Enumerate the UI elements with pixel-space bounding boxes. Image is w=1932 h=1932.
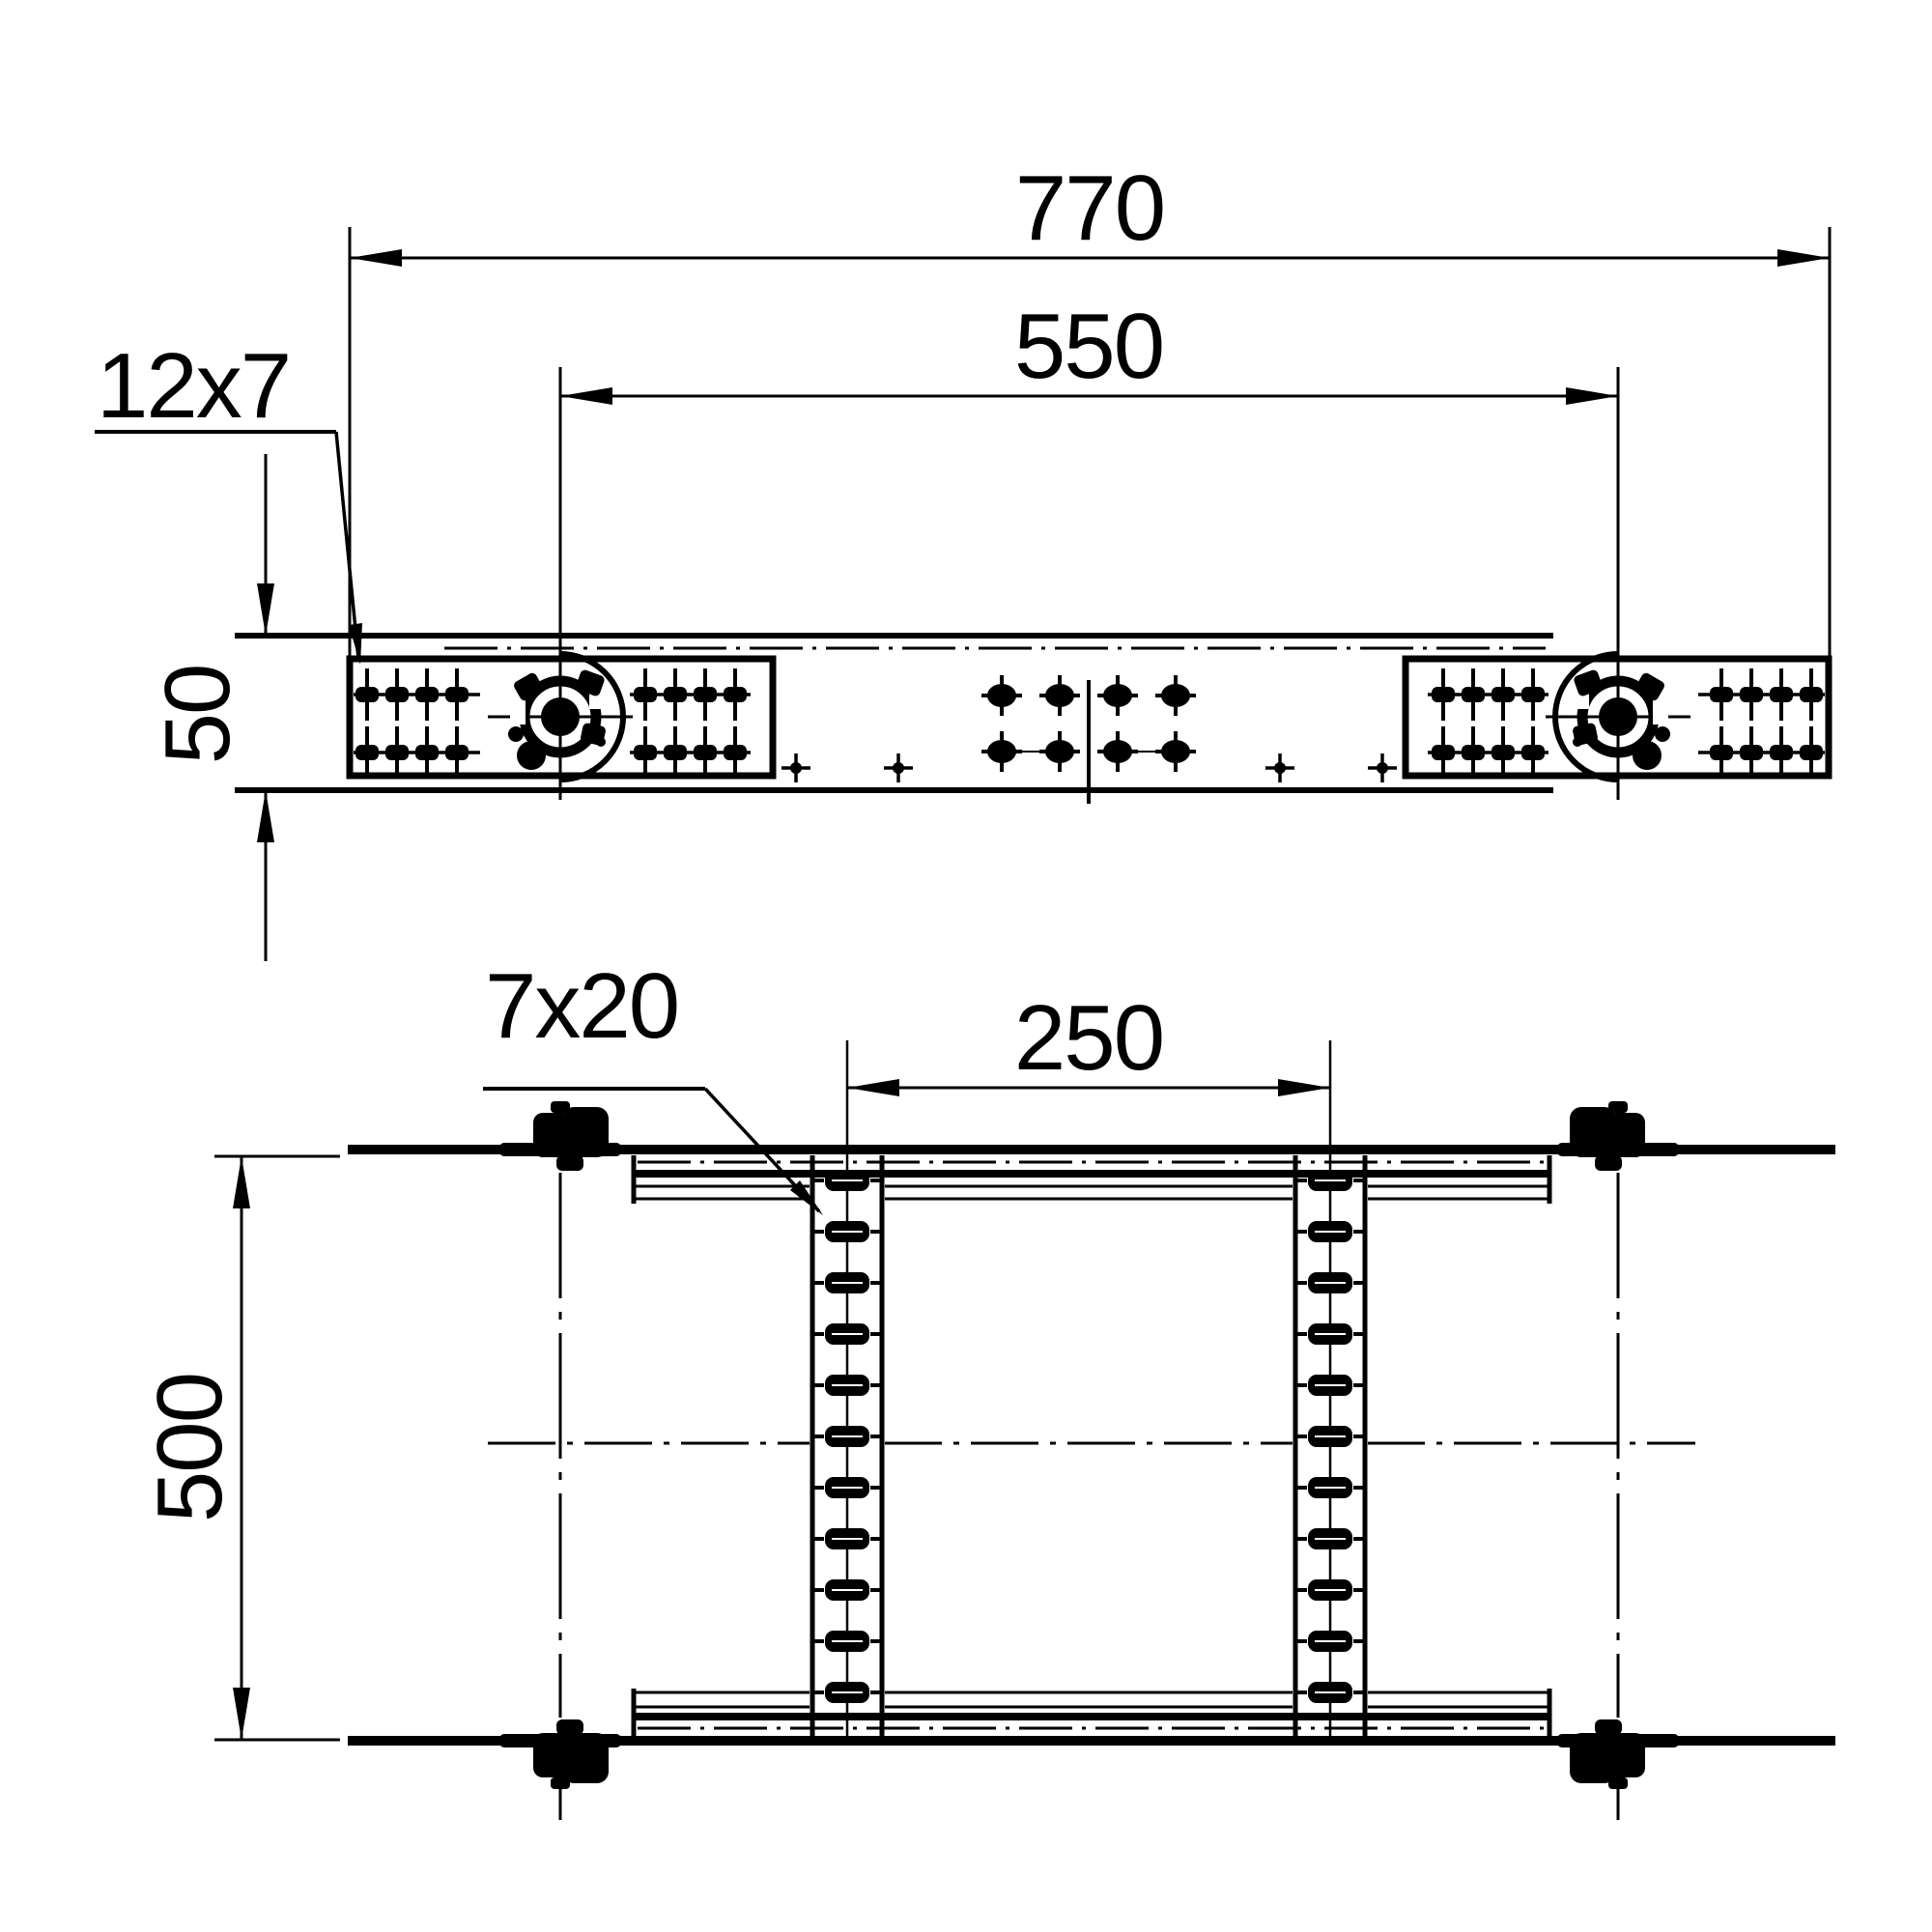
dim-770-label: 770 — [1015, 156, 1164, 260]
arrow-left-icon — [847, 1079, 899, 1096]
arrow-down-icon — [233, 1688, 250, 1740]
arrow-left-icon — [350, 249, 402, 267]
dim-50-label: 50 — [146, 666, 249, 765]
dim-500: 500 — [138, 1156, 340, 1740]
dim-770: 770 — [350, 156, 1830, 657]
connector-rail-thick-lines — [633, 1162, 1550, 1728]
dim-250-label: 250 — [1014, 986, 1163, 1090]
slot-size-top-label: 12x7 — [97, 334, 290, 438]
arrow-right-icon — [1777, 249, 1830, 267]
dim-250: 250 — [847, 986, 1330, 1096]
arrow-right-icon — [1566, 387, 1618, 405]
slot-size-front-label: 7x20 — [485, 954, 678, 1058]
arrow-left-icon — [560, 387, 612, 405]
arrow-up-icon — [233, 1156, 250, 1208]
connector-rail-thin-lines — [633, 1155, 1550, 1739]
pivot-bolts-left — [499, 1101, 621, 1820]
top-view: 770 550 50 12x7 — [95, 156, 1830, 961]
dim-50: 50 — [146, 454, 357, 961]
dim-550: 550 — [560, 295, 1618, 405]
arrow-up-icon — [257, 790, 274, 842]
front-view: 500 250 7x20 — [138, 954, 1835, 1820]
drawing-canvas: 770 550 50 12x7 — [0, 0, 1932, 1932]
pivot-bolts-right — [1557, 1101, 1679, 1820]
dim-500-label: 500 — [138, 1374, 241, 1522]
dim-550-label: 550 — [1014, 295, 1163, 398]
arrow-right-icon — [1278, 1079, 1330, 1096]
drawing-sheet: 770 550 50 12x7 — [0, 0, 1932, 1932]
label-12x7: 12x7 — [95, 334, 362, 665]
pivot-bolt — [499, 1101, 621, 1171]
arrow-down-icon — [257, 583, 274, 636]
